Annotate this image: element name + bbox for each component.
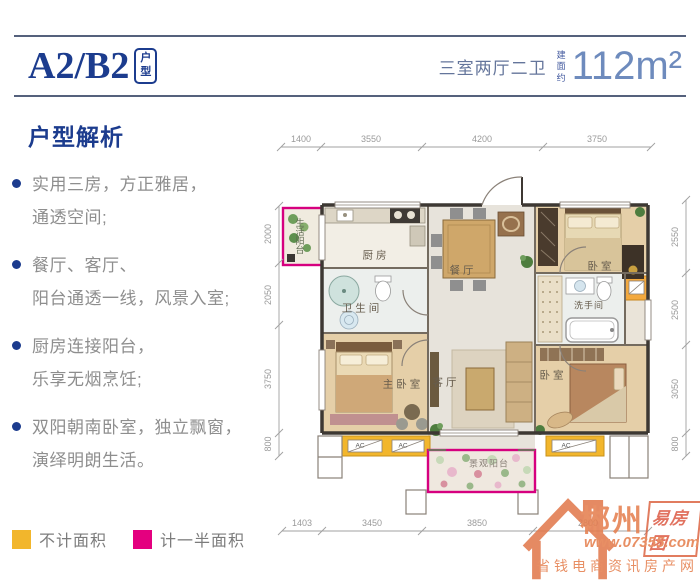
dim-top-4: 3750 bbox=[587, 134, 607, 144]
dim-bottom-2: 3450 bbox=[362, 518, 382, 528]
ac-label: AC bbox=[355, 443, 364, 450]
floorplan-page: A2/B2 户型 三室两厅二卫 建面约 112m² 户型解析 实用三房，方正雅居… bbox=[0, 0, 700, 588]
dim-right-1: 2550 bbox=[670, 227, 680, 247]
room-label-bedroom-top: 卧室 bbox=[588, 259, 615, 274]
dim-right-2: 2500 bbox=[670, 300, 680, 320]
room-label-life-balcony: 生活阳台 bbox=[294, 218, 307, 254]
room-label-dining: 餐厅 bbox=[450, 263, 477, 278]
dim-left-2: 2050 bbox=[263, 285, 273, 305]
dim-left-4: 800 bbox=[263, 436, 273, 451]
dim-bottom-3: 3850 bbox=[467, 518, 487, 528]
watermark: 郴州 易房团 www.07355.com 省钱电商资讯房产网 bbox=[522, 488, 700, 584]
watermark-slogan: 省钱电商资讯房产网 bbox=[536, 556, 698, 576]
room-label-kitchen: 厨房 bbox=[363, 248, 390, 263]
entry-door bbox=[482, 177, 522, 205]
room-label-master-bedroom: 主卧室 bbox=[383, 377, 424, 392]
room-label-view-balcony: 景观阳台 bbox=[469, 457, 509, 470]
dim-top-2: 3550 bbox=[361, 134, 381, 144]
watermark-url: www.07355.com bbox=[584, 534, 699, 551]
dim-left-1: 2000 bbox=[263, 224, 273, 244]
room-label-bedroom-bottom: 卧室 bbox=[540, 368, 567, 383]
dim-left-3: 3750 bbox=[263, 369, 273, 389]
room-label-living: 客厅 bbox=[433, 375, 460, 390]
dim-right-4: 800 bbox=[670, 436, 680, 451]
dim-right-3: 3050 bbox=[670, 379, 680, 399]
dim-bottom-1: 1403 bbox=[292, 518, 312, 528]
ac-label: AC bbox=[561, 443, 570, 450]
room-label-washroom: 洗手间 bbox=[574, 299, 604, 312]
ac-label: AC bbox=[398, 443, 407, 450]
room-label-bathroom: 卫生间 bbox=[342, 301, 383, 316]
dim-top-1: 1400 bbox=[291, 134, 311, 144]
dim-top-3: 4200 bbox=[472, 134, 492, 144]
